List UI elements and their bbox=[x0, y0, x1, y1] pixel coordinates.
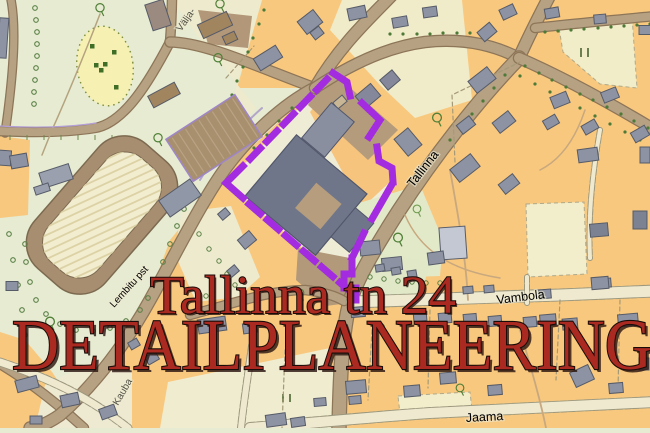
svg-text:Jaama: Jaama bbox=[465, 409, 503, 425]
svg-text:DETAILPLANEERING: DETAILPLANEERING bbox=[12, 305, 650, 385]
